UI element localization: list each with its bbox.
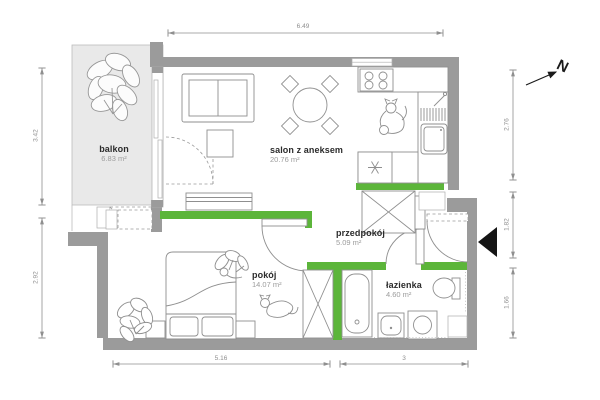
furniture-salon — [182, 74, 338, 210]
room-name: salon z aneksem — [270, 145, 343, 155]
room-name: łazienka — [386, 280, 422, 290]
coffee-table — [207, 130, 233, 157]
room-area: 6.83 m² — [79, 155, 149, 164]
room-area: 14.07 m² — [252, 281, 282, 290]
room-label-balkon: balkon 6.83 m² — [79, 144, 149, 164]
sketch-cat-bedroom — [260, 295, 298, 317]
floor-plan: balkon 6.83 m² salon z aneksem 20.76 m² … — [0, 0, 600, 400]
nightstand-right — [236, 321, 255, 338]
compass — [526, 72, 556, 85]
dining-table — [282, 76, 339, 135]
room-name: balkon — [79, 144, 149, 154]
entry-cabinet — [419, 192, 445, 210]
dim-right-2: 1.82 — [503, 205, 510, 245]
bathroom-sink — [378, 313, 404, 338]
dim-bottom-1: 5.16 — [201, 355, 241, 362]
entrance-door — [427, 214, 468, 262]
sketch-cat-kitchen — [380, 99, 407, 135]
toilet — [433, 278, 460, 299]
room-name: pokój — [252, 270, 282, 280]
room-area: 5.09 m² — [336, 239, 385, 248]
room-name: przedpokój — [336, 228, 385, 238]
hall-wardrobe — [362, 191, 425, 233]
entrance-marker-triangle — [478, 227, 497, 257]
bedroom-door — [262, 219, 307, 271]
room-label-salon: salon z aneksem 20.76 m² — [270, 145, 343, 165]
bedroom-dashed-wardrobe — [106, 210, 152, 229]
floorplan-canvas — [0, 0, 600, 400]
north-arrow — [526, 72, 556, 85]
dim-left-1: 3.42 — [32, 116, 39, 156]
bathroom-door — [386, 229, 424, 264]
room-label-lazienka: łazienka 4.60 m² — [386, 280, 422, 300]
sideboard — [186, 193, 252, 210]
dim-right-1: 2.76 — [503, 105, 510, 145]
room-area: 4.60 m² — [386, 291, 422, 300]
bathtub — [342, 270, 372, 337]
balcony-door-swing — [166, 137, 213, 184]
balcony-floor — [72, 45, 163, 231]
sofa — [182, 74, 254, 122]
furniture-kitchen — [358, 67, 448, 183]
room-label-przedpokoj: przedpokój 5.09 m² — [336, 228, 385, 248]
dim-top-1: 6.49 — [283, 23, 323, 30]
kitchen-window — [352, 59, 392, 67]
dishwasher — [358, 152, 392, 183]
room-label-pokoj: pokój 14.07 m² — [252, 270, 282, 290]
dim-right-3: 1.66 — [503, 283, 510, 323]
utility-shaft — [448, 316, 467, 337]
washing-machine — [408, 311, 437, 339]
hall-closet — [303, 270, 333, 338]
dim-left-2: 2.92 — [32, 258, 39, 298]
stove — [360, 69, 393, 91]
balcony-window-wall — [152, 67, 163, 207]
room-area: 20.76 m² — [270, 156, 343, 165]
dim-bottom-2: 3 — [384, 355, 424, 362]
